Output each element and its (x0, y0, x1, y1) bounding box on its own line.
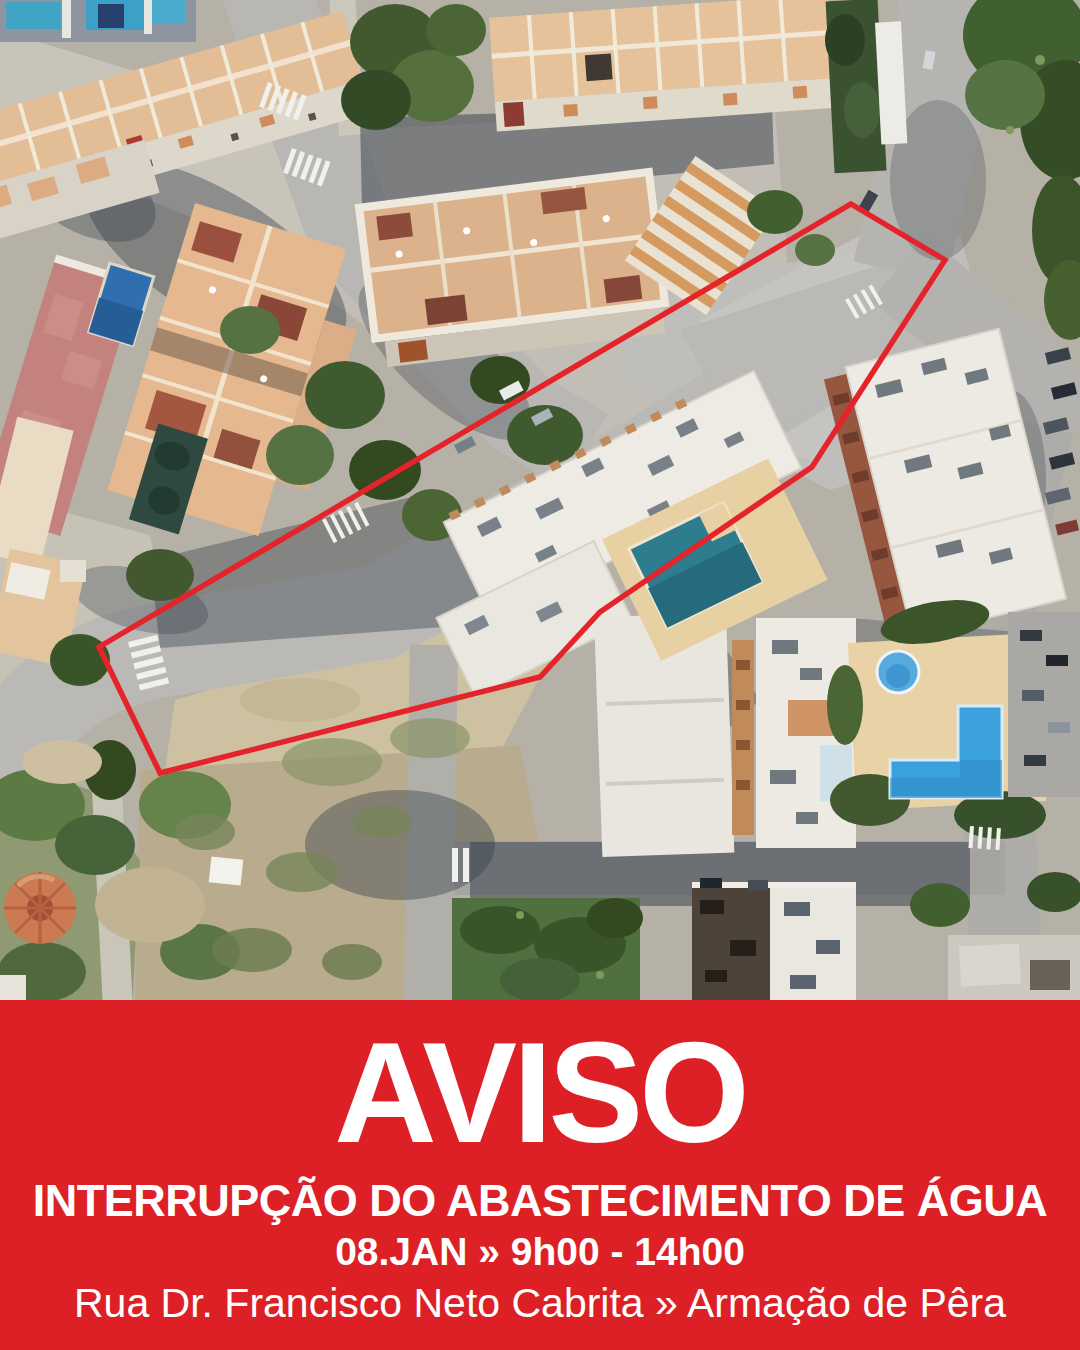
pool-houses-top-left (0, 0, 196, 42)
notice-poster: AVISO INTERRUPÇÃO DO ABASTECIMENTO DE ÁG… (0, 0, 1080, 1350)
notice-banner: AVISO INTERRUPÇÃO DO ABASTECIMENTO DE ÁG… (0, 1000, 1080, 1350)
satellite-map (0, 0, 1080, 1000)
building-bottom-center (692, 882, 856, 1000)
notice-schedule: 08.JAN » 9h00 - 14h00 (0, 1232, 1080, 1273)
notice-title: AVISO (0, 1022, 1080, 1164)
notice-location: Rua Dr. Francisco Neto Cabrita » Armação… (0, 1282, 1080, 1325)
notice-subtitle: INTERRUPÇÃO DO ABASTECIMENTO DE ÁGUA (0, 1177, 1080, 1224)
garden-bottom-center (452, 898, 643, 1000)
